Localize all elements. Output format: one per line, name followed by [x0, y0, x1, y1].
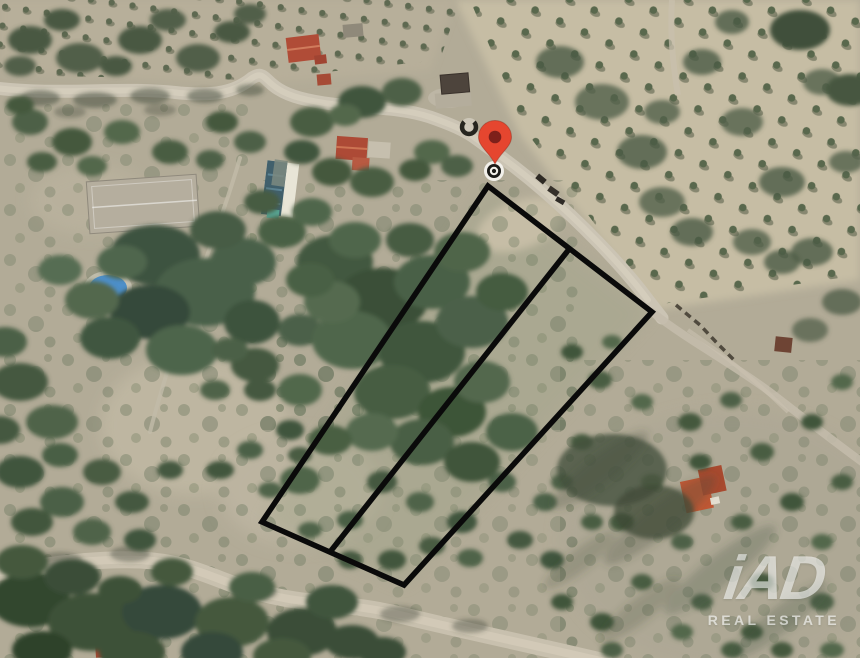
map-canvas[interactable]: iAD REAL ESTATE	[0, 0, 860, 658]
bullseye-marker-icon	[484, 161, 504, 181]
gray-shed	[343, 23, 364, 38]
satellite-map-image	[0, 0, 860, 658]
brown-shed	[774, 336, 792, 353]
small-red-roof	[317, 73, 332, 85]
sports-court	[86, 174, 199, 234]
